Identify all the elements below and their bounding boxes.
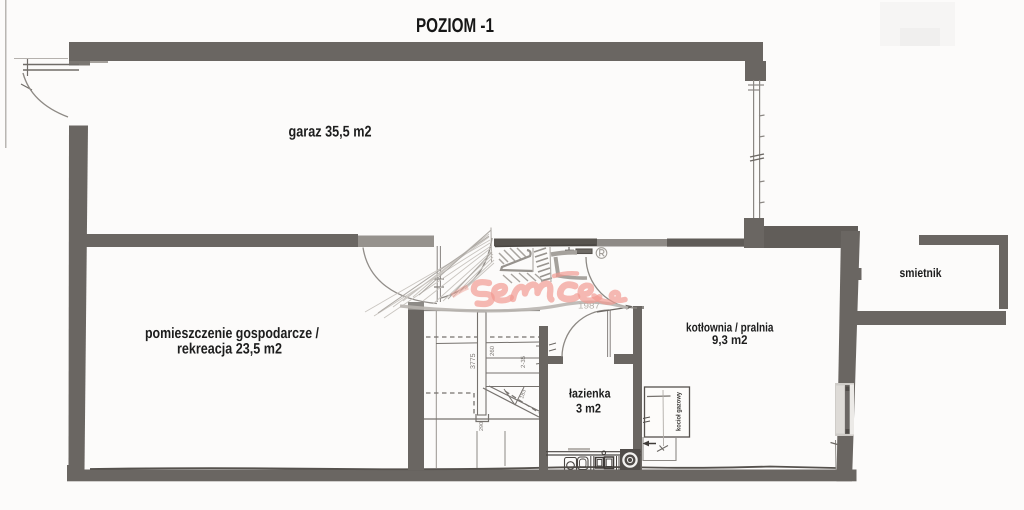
svg-text:3 m2: 3 m2 [576, 402, 601, 416]
svg-text:smietnik: smietnik [900, 266, 942, 280]
svg-text:260: 260 [489, 345, 496, 356]
svg-text:290: 290 [479, 422, 485, 431]
svg-text:POZIOM -1: POZIOM -1 [416, 15, 494, 37]
svg-text:rekreacja 23,5 m2: rekreacja 23,5 m2 [177, 341, 282, 358]
svg-text:3775: 3775 [470, 353, 477, 369]
svg-text:9,3 m2: 9,3 m2 [712, 333, 748, 347]
svg-text:kocioł gazowy: kocioł gazowy [676, 392, 683, 431]
svg-text:łazienka: łazienka [569, 387, 611, 401]
svg-text:2-35: 2-35 [520, 355, 527, 368]
svg-text:pomieszczenie gospodarcze /: pomieszczenie gospodarcze / [145, 325, 320, 342]
svg-text:garaz 35,5 m2: garaz 35,5 m2 [289, 124, 372, 141]
